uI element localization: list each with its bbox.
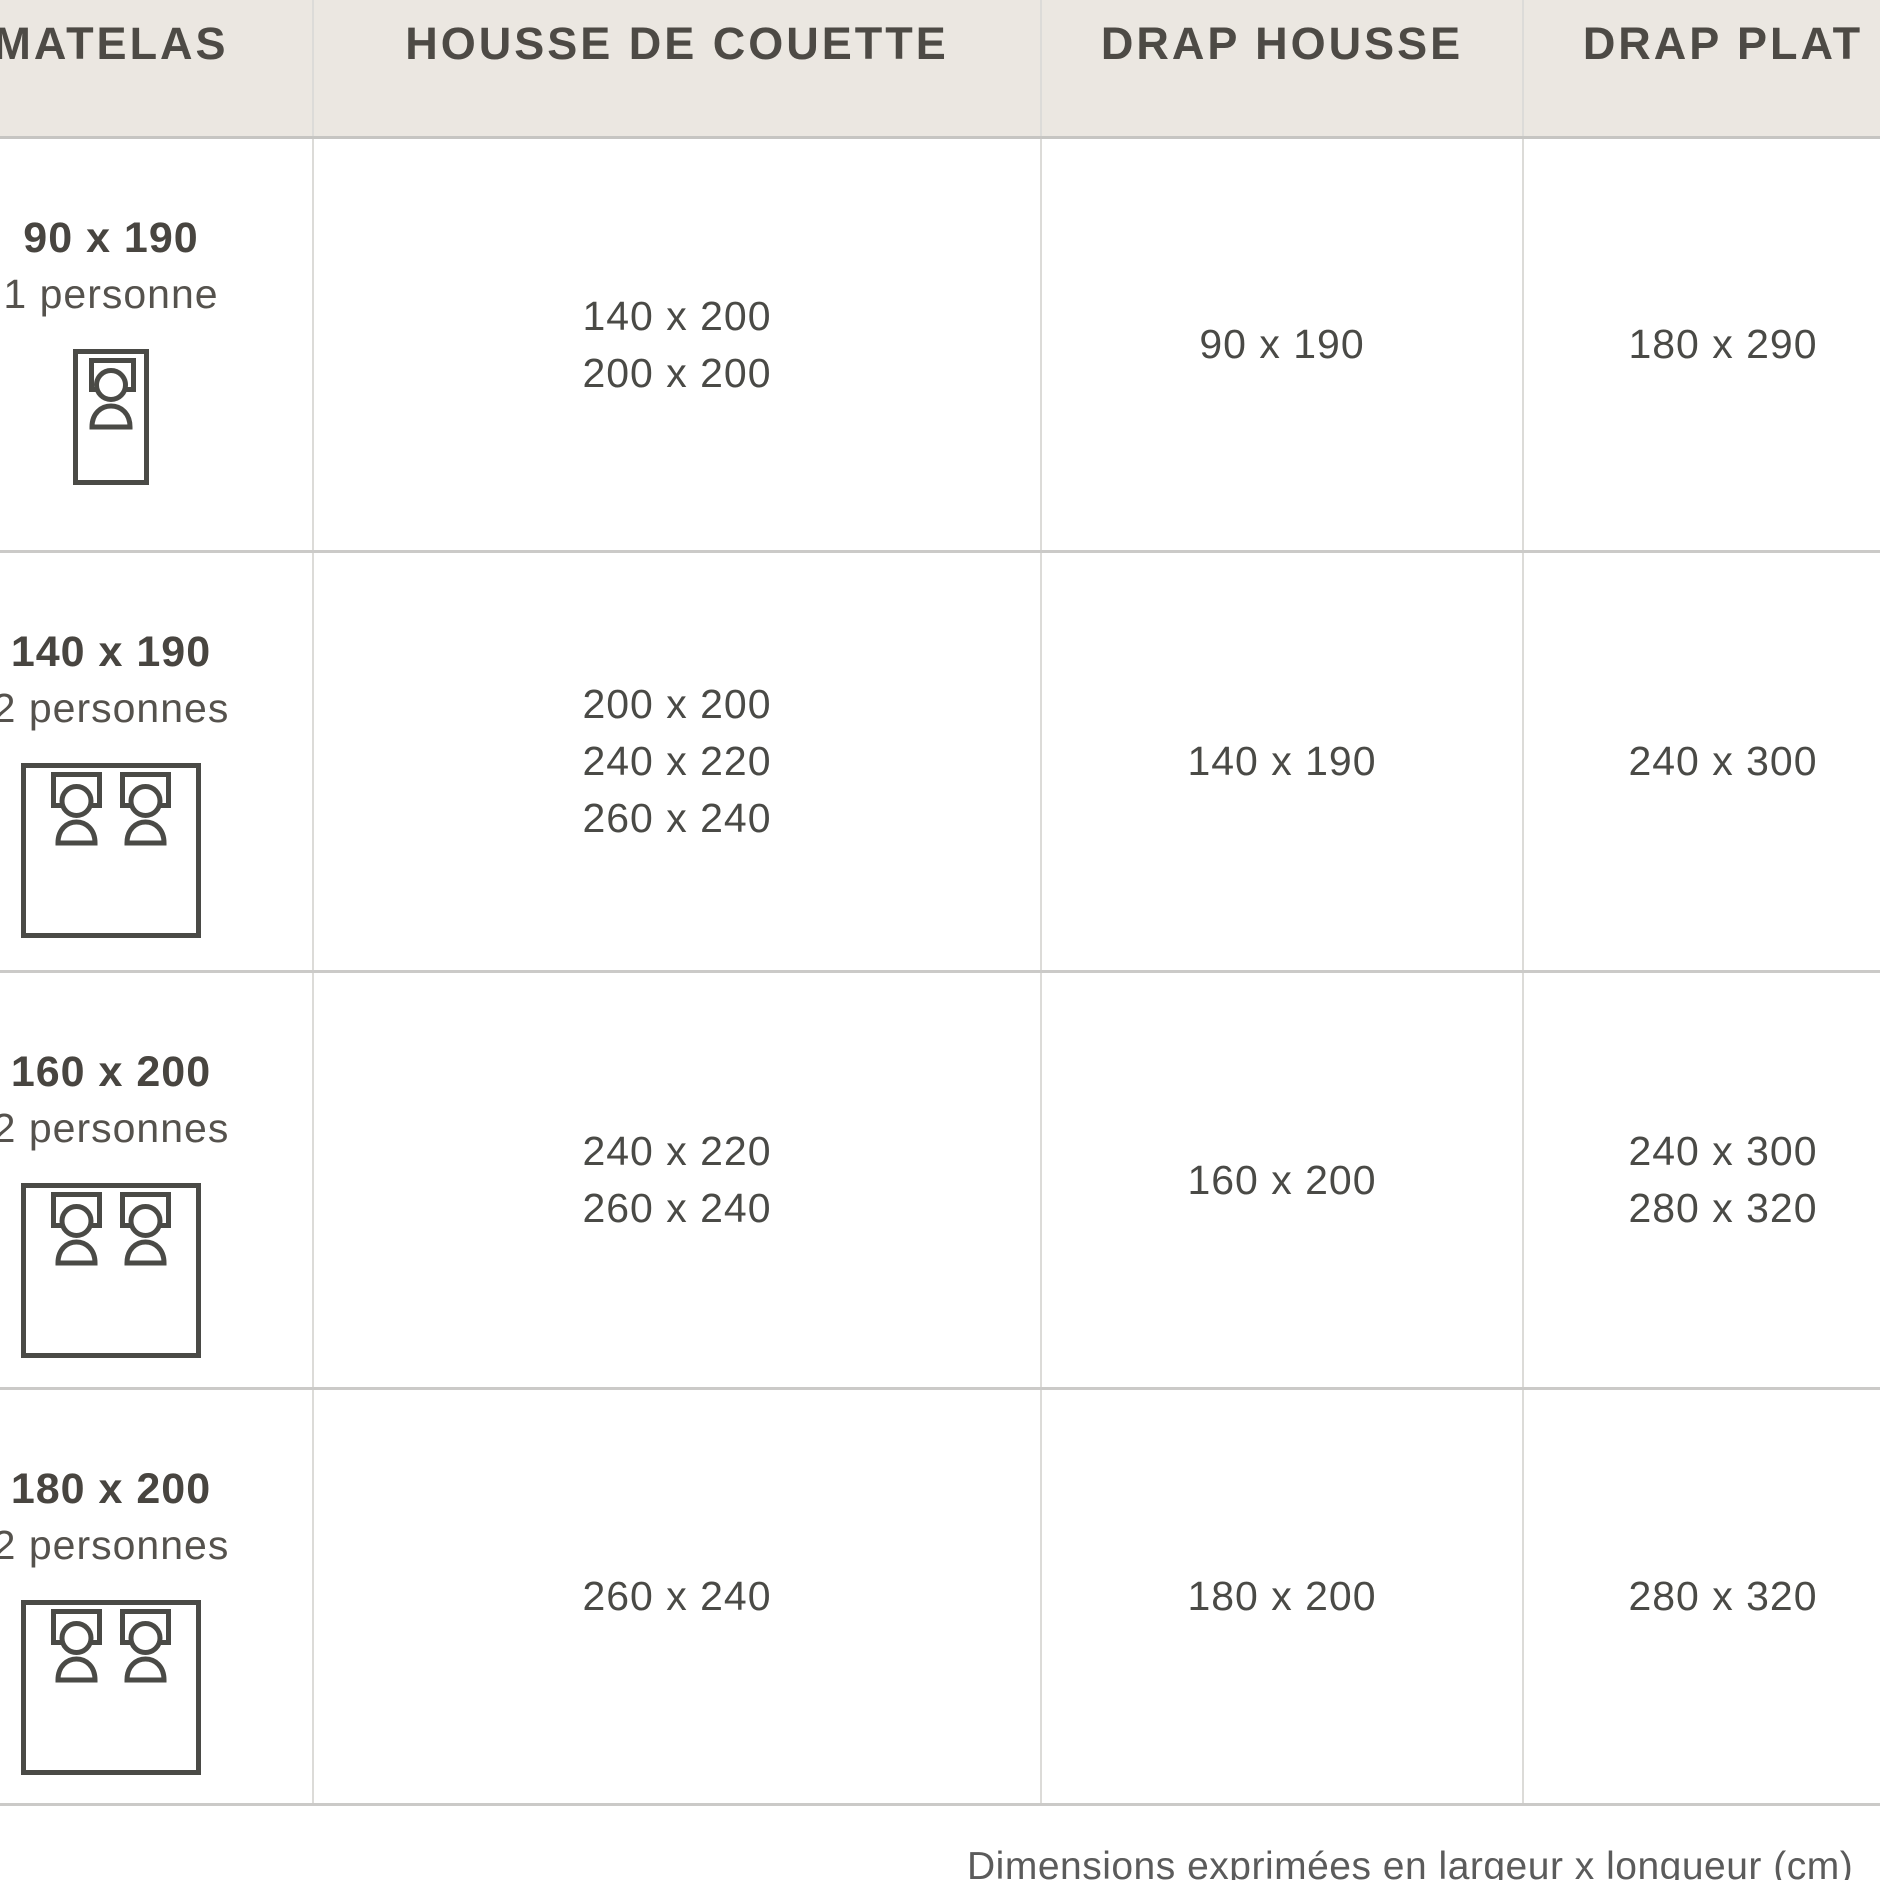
col-header-drap-housse: DRAP HOUSSE bbox=[1040, 0, 1522, 136]
matelas-persons: 1 personne bbox=[3, 269, 218, 319]
size-value: 180 x 200 bbox=[1187, 1568, 1376, 1625]
size-value: 260 x 240 bbox=[582, 1180, 771, 1237]
table-header: MATELAS HOUSSE DE COUETTE DRAP HOUSSE DR… bbox=[0, 0, 1880, 139]
size-guide-table: MATELAS HOUSSE DE COUETTE DRAP HOUSSE DR… bbox=[0, 0, 1880, 1806]
drap-plat-cell: 240 x 300 bbox=[1522, 553, 1880, 970]
size-value: 240 x 220 bbox=[582, 1123, 771, 1180]
table-row: 90 x 190 1 personne 140 x 200 200 x 200 … bbox=[0, 139, 1880, 553]
size-value: 200 x 200 bbox=[582, 676, 771, 733]
size-value: 240 x 220 bbox=[582, 733, 771, 790]
size-value: 280 x 320 bbox=[1628, 1180, 1817, 1237]
matelas-persons: 2 personnes bbox=[0, 1520, 229, 1570]
drap-plat-cell: 180 x 290 bbox=[1522, 139, 1880, 550]
size-value: 140 x 200 bbox=[582, 288, 771, 345]
matelas-cell: 180 x 200 2 personnes bbox=[0, 1390, 312, 1803]
size-value: 160 x 200 bbox=[1187, 1152, 1376, 1209]
size-guide-page: MATELAS HOUSSE DE COUETTE DRAP HOUSSE DR… bbox=[0, 0, 1880, 1880]
drap-plat-cell: 240 x 300 280 x 320 bbox=[1522, 973, 1880, 1387]
drap-plat-cell: 280 x 320 bbox=[1522, 1390, 1880, 1803]
bed-double-icon bbox=[21, 1600, 201, 1775]
matelas-cell: 90 x 190 1 personne bbox=[0, 139, 312, 550]
housse-cell: 200 x 200 240 x 220 260 x 240 bbox=[312, 553, 1040, 970]
size-value: 240 x 300 bbox=[1628, 1123, 1817, 1180]
size-value: 260 x 240 bbox=[582, 790, 771, 847]
matelas-size: 160 x 200 bbox=[11, 1047, 211, 1097]
col-header-matelas: MATELAS bbox=[0, 0, 312, 136]
dimensions-note: Dimensions exprimées en largeur x longue… bbox=[967, 1845, 1853, 1880]
col-header-drap-plat: DRAP PLAT bbox=[1522, 0, 1880, 136]
matelas-cell: 160 x 200 2 personnes bbox=[0, 973, 312, 1387]
bed-single-icon bbox=[73, 349, 149, 485]
table-row: 180 x 200 2 personnes 260 x 240 180 x 20… bbox=[0, 1390, 1880, 1806]
bed-double-icon bbox=[21, 763, 201, 938]
size-value: 90 x 190 bbox=[1199, 316, 1364, 373]
matelas-size: 180 x 200 bbox=[11, 1464, 211, 1514]
size-value: 140 x 190 bbox=[1187, 733, 1376, 790]
drap-housse-cell: 160 x 200 bbox=[1040, 973, 1522, 1387]
matelas-persons: 2 personnes bbox=[0, 683, 229, 733]
matelas-cell: 140 x 190 2 personnes bbox=[0, 553, 312, 970]
bed-double-icon bbox=[21, 1183, 201, 1358]
drap-housse-cell: 180 x 200 bbox=[1040, 1390, 1522, 1803]
table-row: 140 x 190 2 personnes 200 x 200 240 x 22… bbox=[0, 553, 1880, 973]
housse-cell: 240 x 220 260 x 240 bbox=[312, 973, 1040, 1387]
drap-housse-cell: 90 x 190 bbox=[1040, 139, 1522, 550]
matelas-size: 90 x 190 bbox=[23, 213, 198, 263]
size-value: 200 x 200 bbox=[582, 345, 771, 402]
col-header-housse-de-couette: HOUSSE DE COUETTE bbox=[312, 0, 1040, 136]
size-value: 180 x 290 bbox=[1628, 316, 1817, 373]
matelas-persons: 2 personnes bbox=[0, 1103, 229, 1153]
table-row: 160 x 200 2 personnes 240 x 220 260 x 24… bbox=[0, 973, 1880, 1390]
housse-cell: 140 x 200 200 x 200 bbox=[312, 139, 1040, 550]
drap-housse-cell: 140 x 190 bbox=[1040, 553, 1522, 970]
size-value: 240 x 300 bbox=[1628, 733, 1817, 790]
matelas-size: 140 x 190 bbox=[11, 627, 211, 677]
housse-cell: 260 x 240 bbox=[312, 1390, 1040, 1803]
size-value: 280 x 320 bbox=[1628, 1568, 1817, 1625]
size-value: 260 x 240 bbox=[582, 1568, 771, 1625]
